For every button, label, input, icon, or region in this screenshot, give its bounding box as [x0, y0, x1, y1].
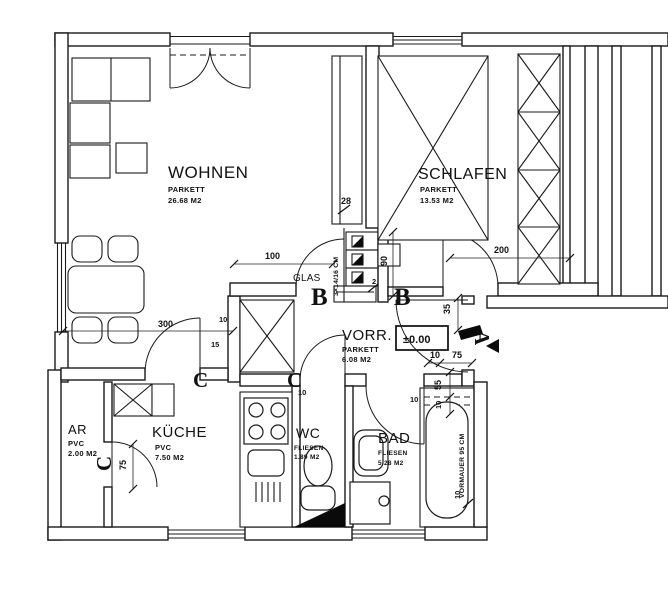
- room-name-wohnen: WOHNEN: [168, 163, 248, 182]
- room-area-schlafen: 13.53 M2: [420, 196, 454, 205]
- section-marker-c-ar: C: [92, 456, 116, 471]
- room-area-vorr: 6.08 M2: [342, 355, 371, 364]
- dim-28: 28: [341, 196, 351, 206]
- dim-10-bad-door: 10: [410, 395, 418, 404]
- room-floor-vorr: PARKETT: [342, 345, 379, 354]
- room-area-wohnen: 26.68 M2: [168, 196, 202, 205]
- dim-15: 15: [211, 340, 219, 349]
- chair: [108, 317, 138, 343]
- section-marker-c-left: C: [193, 368, 208, 392]
- dim-75-ar: 75: [118, 460, 128, 470]
- room-area-wc: 1.89 M2: [294, 454, 320, 461]
- dim-10-entry: 10: [430, 350, 440, 360]
- window-left-wohnen: [58, 243, 66, 332]
- window-bottom-kueche: [168, 530, 245, 538]
- room-area-bad: 5.28 M2: [378, 460, 404, 467]
- room-floor-wohnen: PARKETT: [168, 185, 205, 194]
- room-name-kueche: KÜCHE: [152, 423, 207, 441]
- vormauer-label: VORMAUER 95 CM: [459, 434, 466, 498]
- room-name-schlafen: SCHLAFEN: [418, 166, 507, 183]
- dim-90: 90: [379, 256, 389, 266]
- room-floor-schlafen: PARKETT: [420, 185, 457, 194]
- chair: [72, 236, 102, 262]
- dining-table: [68, 266, 144, 313]
- floor-plan-drawing: 300 100 200 10 15 28 90 2 35 10 75 55 10…: [0, 0, 668, 600]
- section-marker-b-right: B: [394, 284, 411, 311]
- room-name-bad: BAD: [378, 430, 410, 447]
- room-floor-ar: PVC: [68, 439, 85, 448]
- room-floor-bad: FLIESEN: [378, 450, 408, 457]
- dim-75-entry: 75: [452, 350, 462, 360]
- room-name-ar: AR: [68, 422, 87, 437]
- room-area-kueche: 7.50 M2: [155, 453, 184, 462]
- glas-label: GLAS: [293, 273, 321, 284]
- wardrobe-schlafen: [518, 54, 560, 284]
- wardrobe-vorr: [240, 300, 294, 372]
- wc-door: [300, 335, 345, 380]
- dim-200: 200: [494, 245, 509, 255]
- window-top-schlafen: [393, 37, 462, 45]
- room-floor-kueche: PVC: [155, 443, 172, 452]
- room-name-vorr: VORR.: [342, 327, 392, 344]
- chair: [108, 236, 138, 262]
- sink: [248, 450, 284, 476]
- window-bottom-bad: [352, 530, 425, 538]
- kueche-fixtures: [114, 384, 292, 527]
- dim-2: 2: [372, 277, 376, 286]
- section-marker-b-left: B: [311, 284, 328, 311]
- dim-100: 100: [265, 251, 280, 261]
- section-marker-c-right: C: [287, 368, 302, 392]
- level-value: ±0.00: [403, 334, 430, 346]
- room-area-ar: 2.00 M2: [68, 449, 97, 458]
- floor-plan-page: 300 100 200 10 15 28 90 2 35 10 75 55 10…: [0, 0, 668, 600]
- balcony-double-door: [170, 37, 250, 89]
- dim-300: 300: [158, 319, 173, 329]
- toilet-bowl: [304, 446, 332, 486]
- dim-35: 35: [442, 304, 452, 314]
- stair-label: 3×14/16 CM: [333, 257, 340, 296]
- chair: [72, 317, 102, 343]
- room-floor-wc: FLIESEN: [294, 445, 324, 452]
- room-name-wc: WC: [296, 425, 320, 441]
- dim-55: 55: [433, 380, 443, 390]
- toilet-tank: [301, 486, 335, 510]
- dim-10-bath: 10: [434, 401, 443, 409]
- dim-10: 10: [219, 315, 227, 324]
- bad-fixtures: [350, 388, 474, 527]
